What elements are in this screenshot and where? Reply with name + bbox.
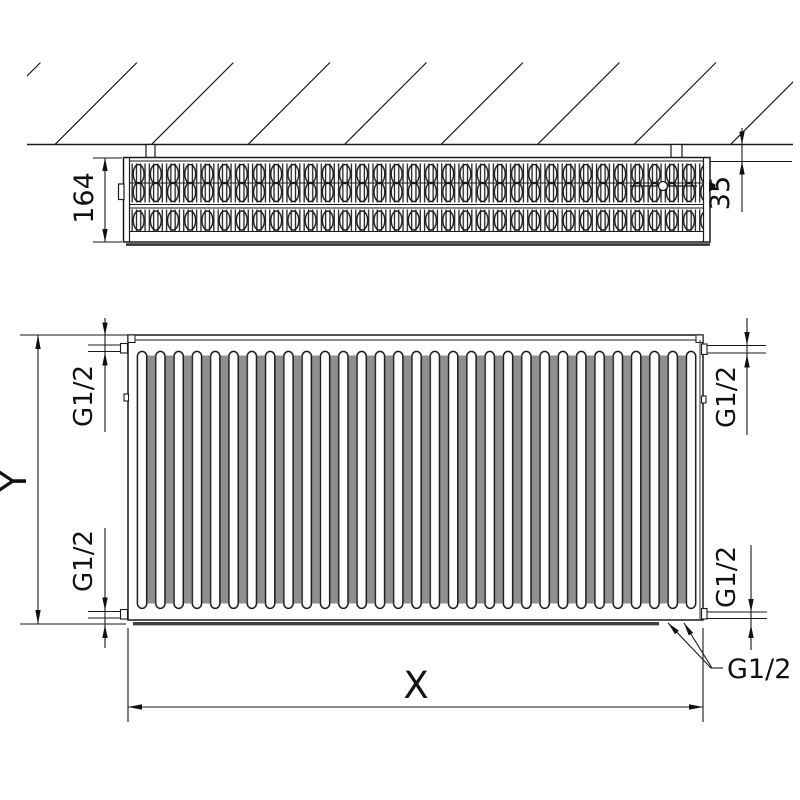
thread-label: G1/2 bbox=[712, 366, 742, 428]
convector-fins-lower bbox=[130, 210, 704, 232]
wall-hatching bbox=[27, 63, 793, 145]
width-label: X bbox=[403, 664, 428, 707]
arrowhead bbox=[684, 623, 693, 635]
arrowhead-down bbox=[102, 229, 107, 242]
arrowhead-up bbox=[35, 335, 40, 349]
right-clip-tab bbox=[702, 396, 707, 403]
port-stub-bottom-left bbox=[121, 610, 128, 620]
mounting-bracket-right bbox=[671, 145, 682, 159]
mounting-bracket-left bbox=[146, 145, 155, 159]
radiator-front-view bbox=[124, 335, 706, 624]
arrowhead-left bbox=[128, 704, 142, 709]
thread-label: G1/2 bbox=[727, 654, 791, 685]
radiator-technical-drawing: 164 35 bbox=[0, 0, 800, 800]
radiator-top-view bbox=[119, 158, 716, 245]
arrowhead-down bbox=[744, 332, 749, 345]
front-view: Y X G1/2 G1/2 G1/2 bbox=[0, 318, 791, 722]
arrowhead-up bbox=[102, 353, 107, 366]
arrowhead-down bbox=[102, 598, 107, 611]
dimension-g12-top-right: G1/2 bbox=[712, 318, 750, 435]
arrowhead-down bbox=[102, 323, 107, 336]
port-stub-top-right bbox=[702, 344, 708, 355]
height-label: Y bbox=[0, 469, 35, 493]
arrowhead-up bbox=[102, 158, 107, 171]
dimension-g12-bottom-right: G1/2 bbox=[712, 545, 754, 650]
valve-insert bbox=[659, 182, 668, 191]
arrowhead-down bbox=[35, 610, 40, 624]
top-view: 164 35 bbox=[27, 63, 793, 245]
port-stub-top-left bbox=[121, 344, 128, 354]
panel-groove-pattern bbox=[137, 351, 697, 610]
dimension-width-x: X bbox=[128, 628, 703, 722]
leader-g12-bottom-connections: G1/2 bbox=[668, 623, 791, 685]
left-clip-tab bbox=[124, 394, 129, 401]
convector-fins-upper bbox=[130, 164, 704, 203]
drawing-canvas: 164 35 bbox=[0, 0, 800, 800]
thread-label: G1/2 bbox=[69, 365, 99, 427]
thread-label: G1/2 bbox=[712, 546, 742, 608]
corner-cap-left bbox=[128, 335, 135, 343]
arrowhead-up bbox=[748, 625, 753, 638]
arrowhead-right bbox=[689, 704, 703, 709]
arrowhead-up bbox=[102, 625, 107, 638]
arrowhead-up bbox=[739, 162, 744, 175]
depth-label: 164 bbox=[69, 172, 100, 224]
dimension-g12-bottom-left: G1/2 bbox=[69, 528, 108, 648]
arrowhead-up bbox=[744, 355, 749, 368]
dimension-height-y: Y bbox=[0, 335, 128, 624]
arrowhead-down bbox=[748, 599, 753, 612]
dimension-depth-164: 164 bbox=[69, 158, 122, 242]
left-seam-tab bbox=[119, 184, 125, 200]
wall-clearance-label: 35 bbox=[705, 176, 736, 210]
port-stub-bottom-right bbox=[702, 609, 708, 620]
thread-label: G1/2 bbox=[69, 530, 99, 592]
